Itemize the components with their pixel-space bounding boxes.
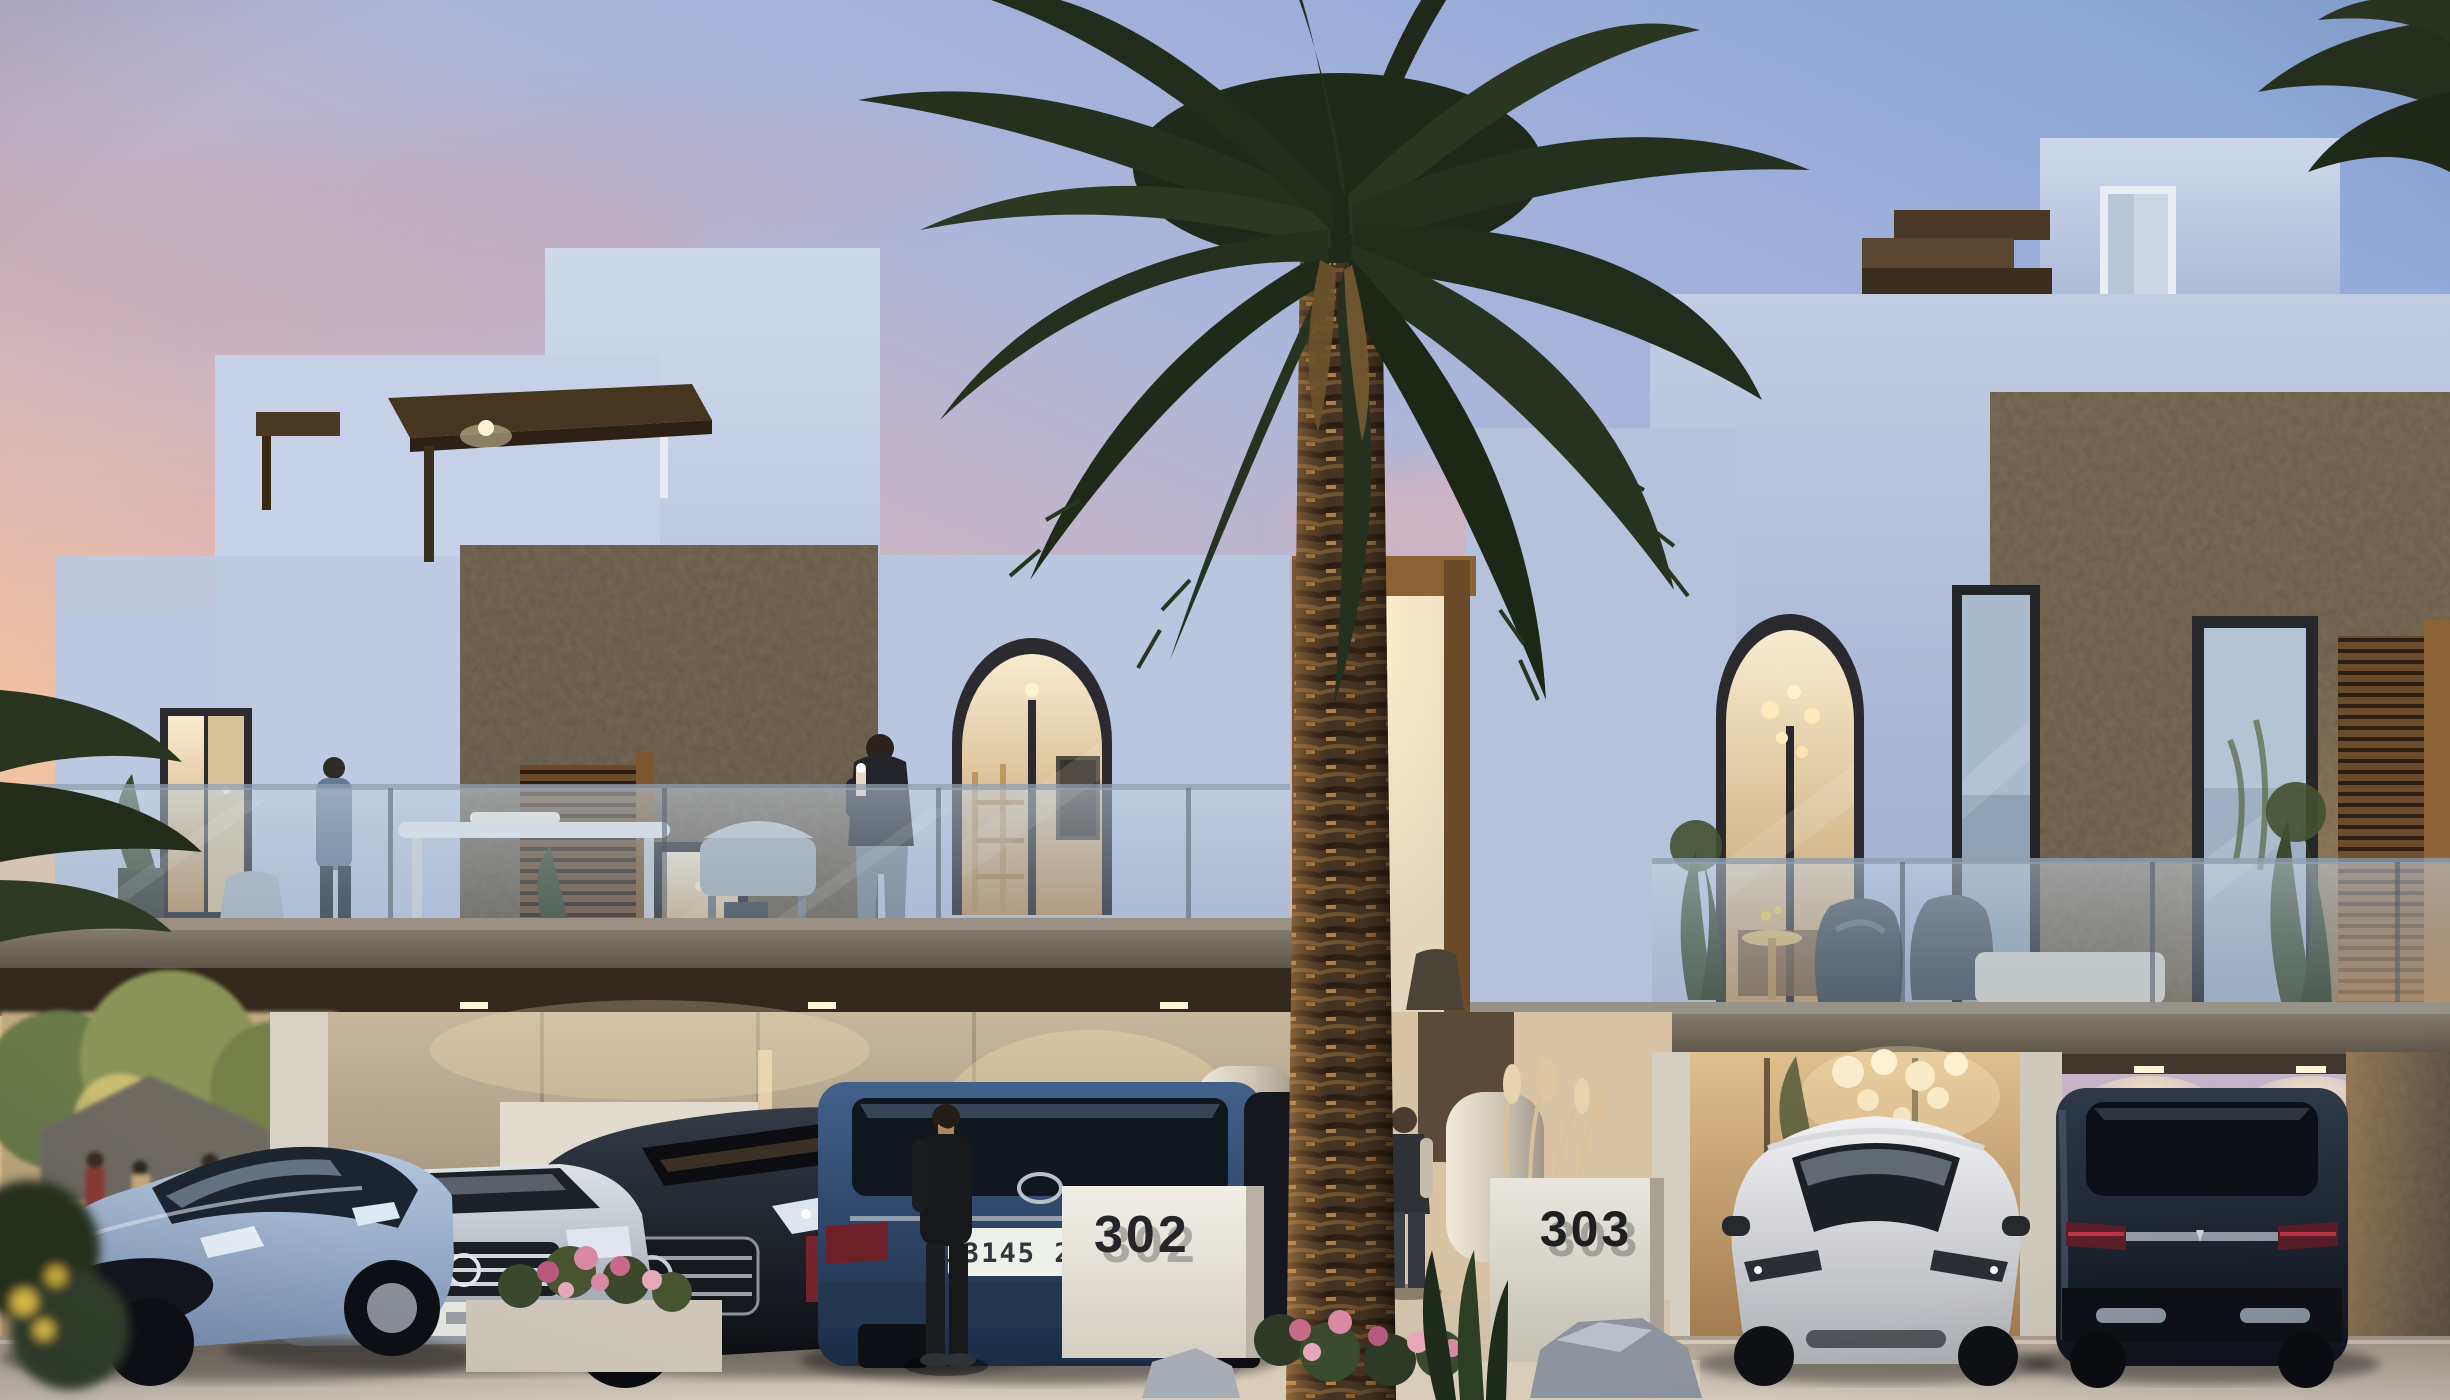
scene-canvas: 33145 2357 (0, 0, 2450, 1400)
rendered-scene: 33145 2357 (0, 0, 2450, 1400)
vignette (0, 0, 2450, 1400)
